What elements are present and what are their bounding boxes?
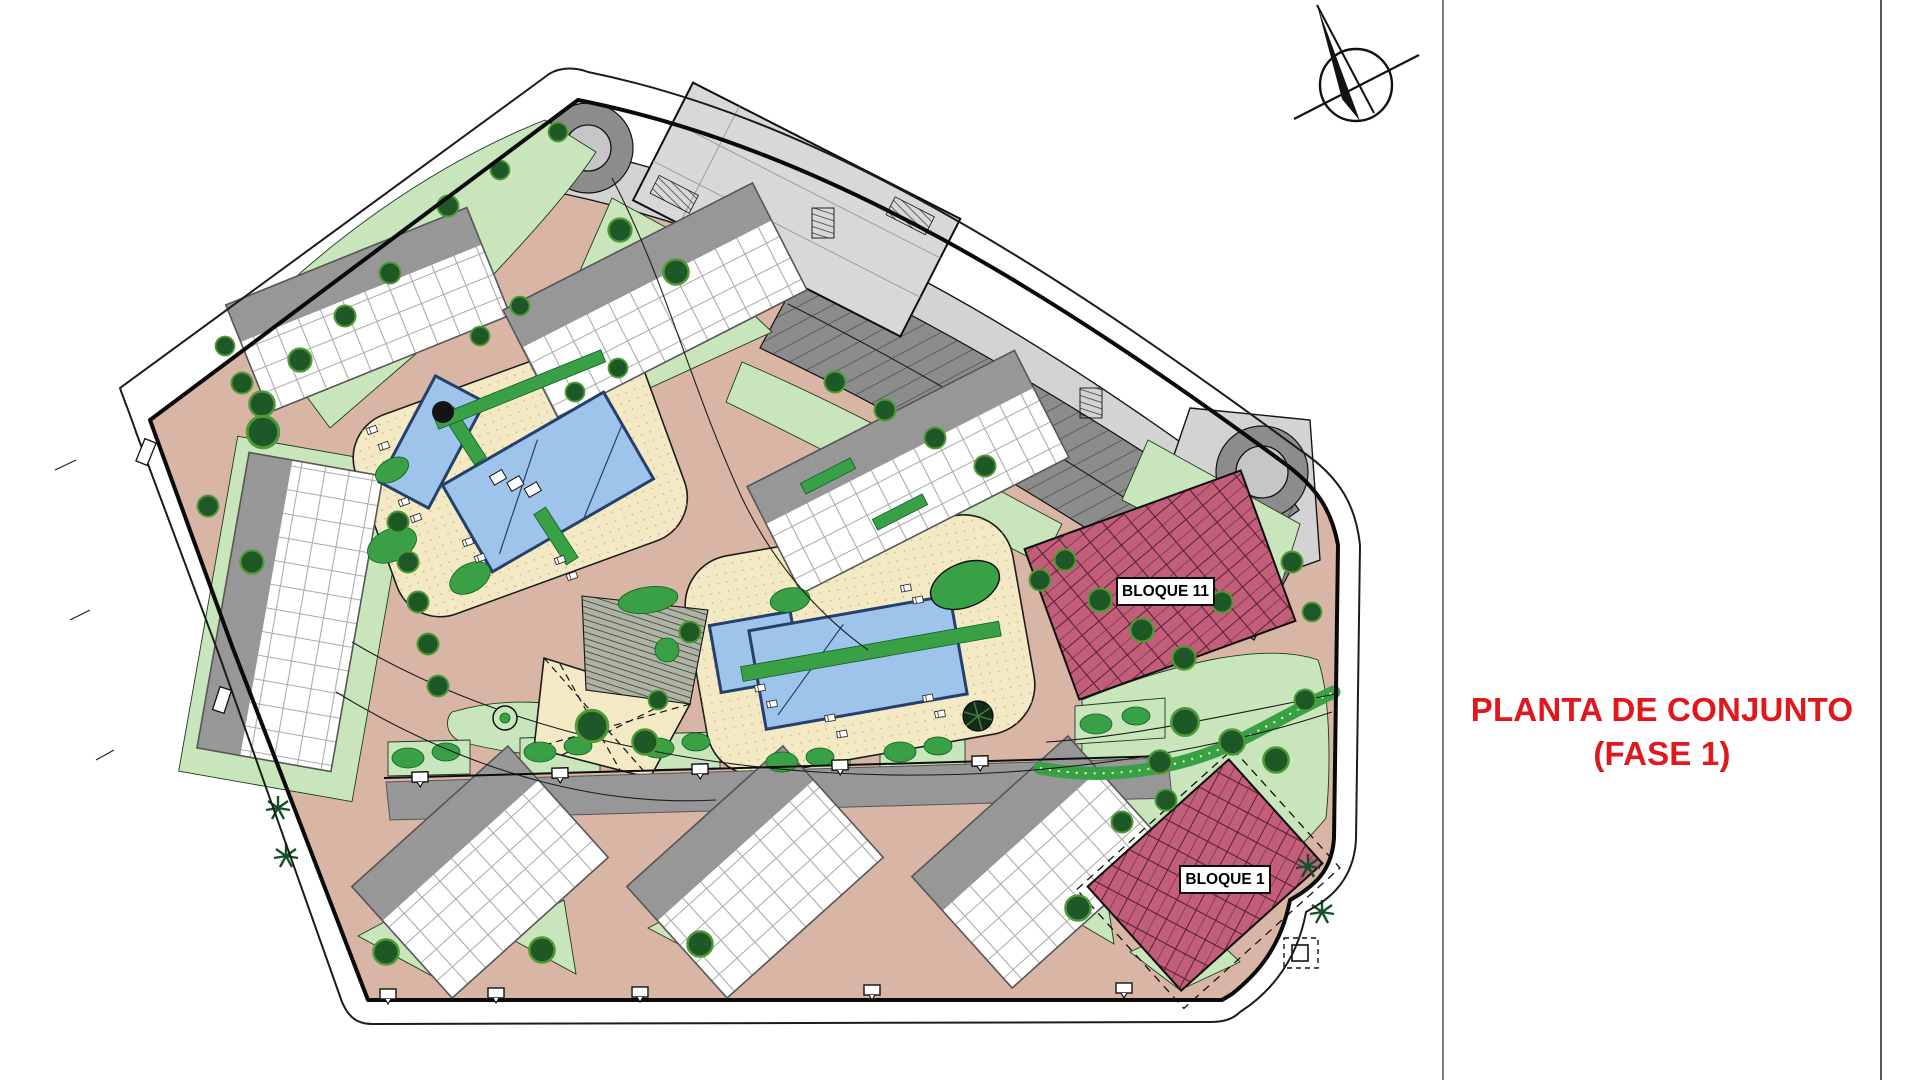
tree-icon: [1263, 747, 1288, 772]
tree-icon: [232, 373, 253, 394]
tree-icon: [875, 400, 896, 421]
tree-icon: [566, 383, 585, 402]
lounger-icon: [935, 710, 946, 718]
tree-icon: [1130, 618, 1153, 641]
tree-icon: [1088, 588, 1111, 611]
survey-ticks: [55, 460, 114, 760]
tree-icon: [663, 259, 688, 284]
bloque-11-label: BLOQUE 11: [1117, 578, 1214, 605]
tree-icon: [1172, 646, 1195, 669]
tree-icon: [1112, 812, 1133, 833]
svg-text:BLOQUE 1: BLOQUE 1: [1185, 871, 1265, 888]
drawing-sheet: BLOQUE 11 BLOQUE 1 PLANTA DE CONJUNTO (F…: [0, 0, 1920, 1080]
divider-line-left: [1442, 0, 1444, 1080]
tree-icon: [247, 416, 279, 448]
tree-icon: [609, 359, 628, 378]
tree-icon: [335, 306, 356, 327]
tree-icon: [1055, 550, 1076, 571]
tree-icon: [529, 937, 554, 962]
tree-icon: [428, 676, 449, 697]
tree-icon: [418, 634, 439, 655]
tree-icon: [1156, 790, 1177, 811]
tree-icon: [649, 691, 668, 710]
lounger-icon: [913, 596, 924, 604]
lounger-icon: [923, 694, 934, 702]
svg-text:BLOQUE 11: BLOQUE 11: [1122, 583, 1209, 600]
tree-icon: [388, 512, 409, 533]
tree-icon: [408, 592, 429, 613]
tree-icon: [632, 729, 657, 754]
lounger-icon: [825, 714, 836, 722]
tree-icon: [216, 337, 235, 356]
tree-icon: [1171, 708, 1198, 735]
tree-icon: [373, 939, 398, 964]
lounger-icon: [837, 730, 848, 738]
tree-icon: [1282, 552, 1303, 573]
tree-icon: [1219, 729, 1244, 754]
tree-icon: [975, 456, 996, 477]
palm-disc-icon: [432, 401, 454, 423]
tree-icon: [576, 710, 608, 742]
tree-icon: [925, 428, 946, 449]
tree-icon: [1303, 603, 1322, 622]
palm-icon: [1310, 900, 1334, 923]
stair-icon: [1080, 388, 1102, 418]
ringed-tree-icon: [493, 706, 517, 730]
divider-line-right: [1880, 0, 1882, 1080]
drawing-title-line1: PLANTA DE CONJUNTO: [1445, 688, 1879, 732]
utility-box: [1284, 938, 1318, 968]
tree-icon: [680, 622, 701, 643]
tree-icon: [240, 550, 263, 573]
tree-icon: [549, 123, 568, 142]
tree-icon: [471, 327, 490, 346]
palm-icon: [274, 844, 298, 867]
stair-icon: [812, 208, 834, 238]
tree-icon: [288, 348, 311, 371]
tree-icon: [511, 297, 530, 316]
tree-icon: [1295, 690, 1316, 711]
tree-icon: [825, 372, 846, 393]
site-plan-svg: BLOQUE 11 BLOQUE 1: [0, 0, 1920, 1080]
bloque-1-label: BLOQUE 1: [1180, 866, 1270, 893]
lounger-icon: [755, 684, 766, 692]
tree-icon: [1065, 895, 1090, 920]
tree-icon: [198, 496, 219, 517]
palm-disc-icon: [963, 701, 993, 731]
tree-icon: [398, 552, 419, 573]
tree-icon: [608, 218, 631, 241]
tree-icon: [249, 391, 274, 416]
drawing-title-line2: (FASE 1): [1445, 732, 1879, 776]
drawing-title: PLANTA DE CONJUNTO (FASE 1): [1445, 688, 1879, 775]
tree-icon: [1148, 750, 1171, 773]
lounger-icon: [767, 700, 778, 708]
tree-icon: [1030, 570, 1051, 591]
north-arrow-icon: [1294, 5, 1419, 121]
tree-icon: [687, 931, 712, 956]
tree-icon: [380, 263, 401, 284]
lounger-icon: [901, 584, 912, 592]
